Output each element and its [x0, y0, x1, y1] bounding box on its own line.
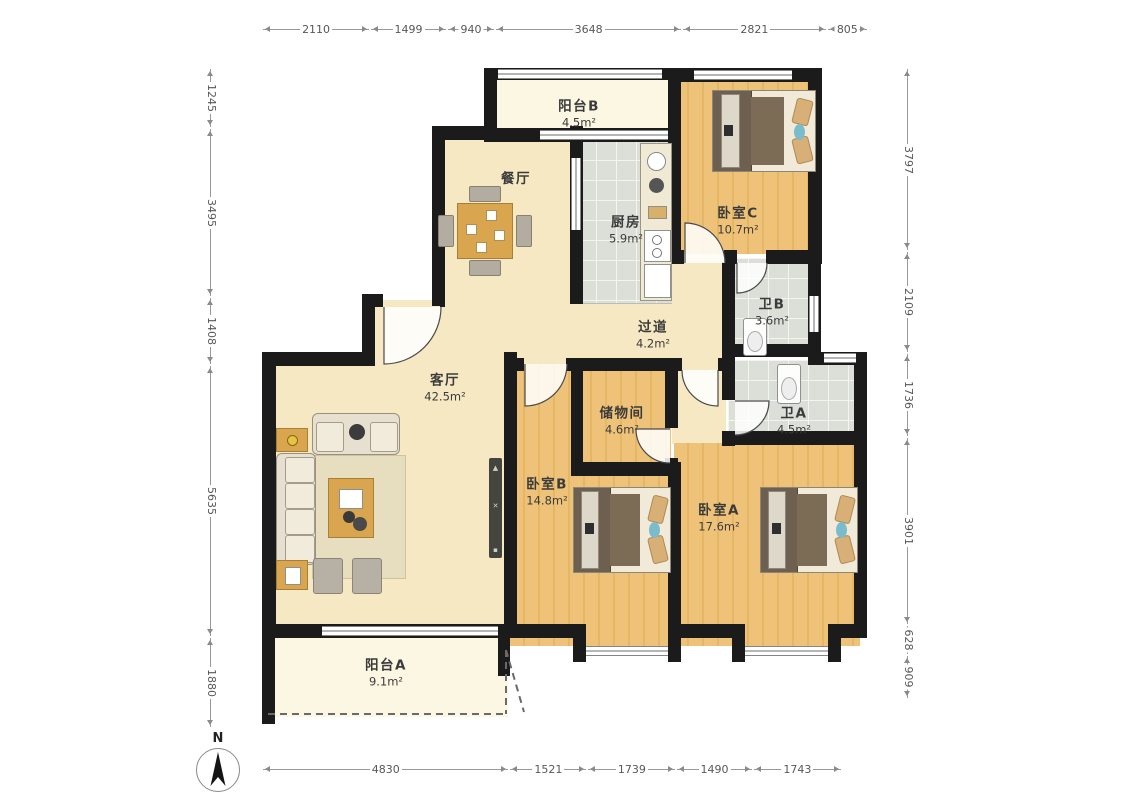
dim-segment: 2109 — [901, 251, 915, 353]
room-name: 厨房 — [609, 211, 643, 231]
room-area: 17.6m² — [698, 520, 740, 534]
dim-value: 5635 — [205, 485, 217, 517]
room-area: 4.5m² — [558, 116, 600, 130]
dim-ruler-right: 3797210917363901628909 — [901, 68, 915, 699]
room-area: 4.5m² — [777, 423, 811, 437]
toilet-icon — [777, 364, 801, 404]
room-floor-vestibule — [672, 364, 726, 444]
wall — [262, 638, 275, 724]
bed-icon — [573, 487, 671, 573]
dim-value: 1245 — [205, 82, 217, 114]
room-name: 阳台A — [365, 654, 407, 674]
room-label-woshi-a: 卧室A17.6m² — [698, 499, 740, 534]
wall — [504, 352, 517, 638]
window — [745, 646, 828, 656]
bed-icon — [712, 90, 816, 172]
wall — [573, 624, 586, 662]
dim-value: 1408 — [205, 315, 217, 347]
room-name: 卧室A — [698, 499, 740, 519]
dim-segment: 940 — [447, 23, 495, 37]
wall — [571, 358, 583, 468]
coffee-table-icon — [328, 478, 374, 538]
dim-segment: 1408 — [204, 297, 218, 365]
room-label-wei-b: 卫B3.6m² — [755, 293, 789, 328]
wall — [504, 358, 524, 371]
bed-icon — [760, 487, 858, 573]
room-area: 14.8m² — [526, 494, 568, 508]
room-area: 4.6m² — [600, 423, 645, 437]
wall — [722, 262, 735, 356]
sofa-short-icon — [312, 413, 400, 455]
sofa-long-icon — [276, 453, 316, 565]
window — [694, 70, 792, 80]
wall — [722, 344, 821, 357]
dim-segment: 1739 — [587, 763, 676, 777]
wall — [828, 624, 867, 638]
stool-icon — [313, 558, 343, 594]
dim-segment: 909 — [901, 655, 915, 699]
room-name: 卧室B — [526, 473, 568, 493]
room-area: 4.2m² — [636, 337, 670, 351]
room-name: 阳台B — [558, 95, 600, 115]
dim-segment: 805 — [827, 23, 868, 37]
dim-segment: 2821 — [682, 23, 827, 37]
dim-segment: 5635 — [204, 365, 218, 637]
side-table-icon — [276, 560, 308, 590]
room-area: 10.7m² — [717, 223, 758, 237]
dim-value: 2821 — [738, 24, 770, 36]
dim-value: 4830 — [370, 764, 402, 776]
dim-value: 1499 — [393, 24, 425, 36]
tv-cabinet-icon: ▲✕▪ — [489, 458, 502, 558]
dim-value: 1739 — [616, 764, 648, 776]
room-label-chufang: 厨房5.9m² — [609, 211, 643, 246]
dim-segment: 1736 — [901, 353, 915, 437]
window — [322, 626, 498, 636]
dim-value: 3797 — [902, 144, 914, 176]
dim-segment: 628 — [901, 625, 915, 655]
dim-value: 1521 — [532, 764, 564, 776]
dining-chair-icon — [469, 186, 501, 202]
room-name: 餐厅 — [501, 167, 531, 187]
room-label-yangtai-b: 阳台B4.5m² — [558, 95, 600, 130]
room-area: 42.5m² — [424, 390, 465, 404]
dim-value: 2110 — [300, 24, 332, 36]
dining-chair-icon — [469, 260, 501, 276]
wall — [440, 294, 445, 307]
room-name: 客厅 — [424, 369, 465, 389]
dim-segment: 2110 — [262, 23, 370, 37]
wall — [262, 352, 276, 638]
dim-segment: 1521 — [509, 763, 587, 777]
dim-segment: 3495 — [204, 128, 218, 297]
dim-segment: 1490 — [676, 763, 752, 777]
dim-ruler-left: 12453495140856351880 — [204, 68, 218, 728]
window — [540, 130, 668, 140]
window — [586, 646, 668, 656]
dim-segment: 3648 — [495, 23, 682, 37]
stool-icon — [352, 558, 382, 594]
wall — [665, 358, 678, 428]
dining-table-icon — [457, 203, 513, 259]
compass: N — [196, 748, 240, 792]
dim-segment: 1880 — [204, 637, 218, 728]
dim-segment: 1245 — [204, 68, 218, 128]
dim-ruler-top: 2110149994036482821805 — [262, 23, 868, 37]
dim-value: 1743 — [781, 764, 813, 776]
window — [571, 158, 581, 230]
dim-value: 3901 — [902, 515, 914, 547]
dim-value: 1736 — [902, 379, 914, 411]
dim-value: 3648 — [573, 24, 605, 36]
dining-chair-icon — [438, 215, 454, 247]
room-label-wei-a: 卫A4.5m² — [777, 402, 811, 437]
room-label-canting: 餐厅 — [501, 167, 531, 187]
dim-ruler-bottom: 48301521173914901743 — [262, 763, 842, 777]
compass-ring — [196, 748, 240, 792]
room-area: 5.9m² — [609, 232, 643, 246]
room-area: 9.1m² — [365, 675, 407, 689]
dim-segment: 1499 — [370, 23, 447, 37]
dim-segment: 3797 — [901, 68, 915, 251]
wall — [498, 638, 510, 676]
wall — [722, 357, 735, 400]
window — [809, 296, 819, 332]
dim-value: 3495 — [205, 197, 217, 229]
dim-value: 628 — [902, 627, 914, 652]
room-label-yangtai-a: 阳台A9.1m² — [365, 654, 407, 689]
room-label-woshi-c: 卧室C10.7m² — [717, 202, 758, 237]
room-name: 过道 — [636, 316, 670, 336]
dim-segment: 1743 — [753, 763, 842, 777]
dining-chair-icon — [516, 215, 532, 247]
window — [824, 353, 856, 363]
window — [498, 69, 662, 79]
room-label-guodao: 过道4.2m² — [636, 316, 670, 351]
room-label-woshi-b: 卧室B14.8m² — [526, 473, 568, 508]
room-name: 卧室C — [717, 202, 758, 222]
room-floor-entry — [368, 300, 510, 364]
wall — [362, 294, 375, 366]
floor-plan-canvas: ▲✕▪ 2110149994036482821805 4830 — [0, 0, 1125, 800]
dim-value: 940 — [459, 24, 484, 36]
room-label-keting: 客厅42.5m² — [424, 369, 465, 404]
room-name: 卫B — [755, 293, 789, 313]
kitchen-counter-icon — [640, 143, 672, 301]
dim-value: 909 — [902, 665, 914, 690]
dim-value: 805 — [835, 24, 860, 36]
room-area: 3.6m² — [755, 314, 789, 328]
wall — [262, 352, 362, 366]
dim-segment: 4830 — [262, 763, 509, 777]
dim-segment: 3901 — [901, 437, 915, 625]
side-table-icon — [276, 428, 308, 452]
wall — [571, 462, 678, 476]
dim-value: 1880 — [205, 667, 217, 699]
room-name: 卫A — [777, 402, 811, 422]
dim-value: 2109 — [902, 286, 914, 318]
north-label: N — [213, 731, 224, 746]
wall — [732, 624, 745, 662]
dim-value: 1490 — [699, 764, 731, 776]
room-name: 储物间 — [600, 402, 645, 422]
room-label-chuwujian: 储物间4.6m² — [600, 402, 645, 437]
